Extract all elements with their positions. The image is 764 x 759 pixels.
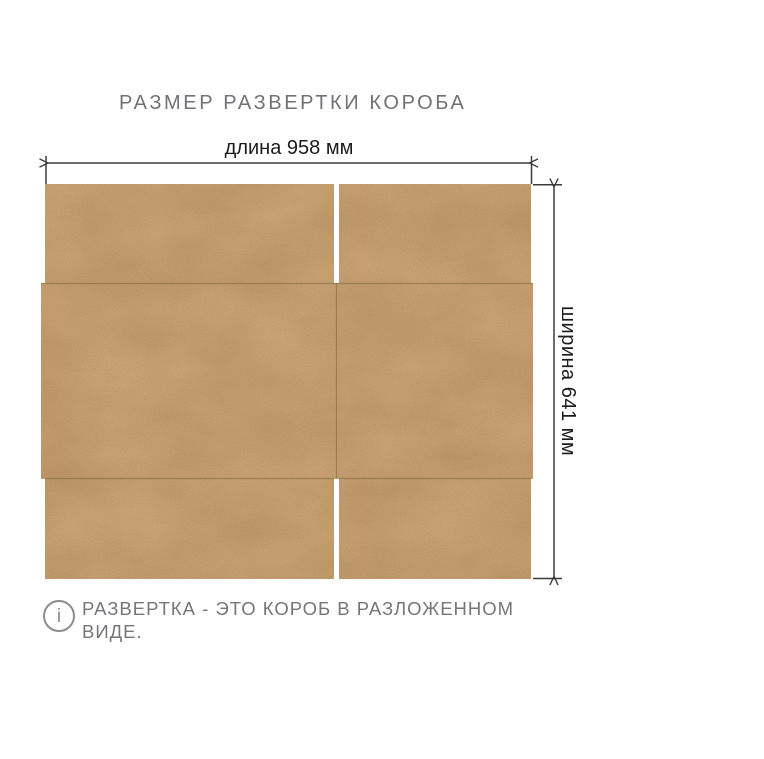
box-flap-top-left [45, 184, 334, 284]
note-text: РАЗВЕРТКА - ЭТО КОРОБ В РАЗЛОЖЕННОМ ВИДЕ… [82, 598, 514, 643]
box-unfolded-diagram [0, 0, 764, 759]
box-flap-bottom-right [339, 478, 531, 579]
length-dimension-label: длина 958 мм [46, 137, 532, 160]
width-dimension-label: ширина 641 мм [556, 184, 579, 579]
page: РАЗМЕР РАЗВЕРТКИ КОРОБА [0, 0, 764, 759]
note-line-2: ВИДЕ. [82, 621, 514, 644]
box-flap-top-right [339, 184, 531, 284]
cardboard-panels [41, 184, 533, 579]
note: i РАЗВЕРТКА - ЭТО КОРОБ В РАЗЛОЖЕННОМ ВИ… [43, 598, 514, 643]
note-line-1: РАЗВЕРТКА - ЭТО КОРОБ В РАЗЛОЖЕННОМ [82, 598, 514, 621]
info-icon: i [43, 600, 75, 632]
box-middle-band [41, 283, 533, 478]
info-icon-glyph: i [57, 607, 61, 626]
box-flap-bottom-left [45, 478, 334, 579]
